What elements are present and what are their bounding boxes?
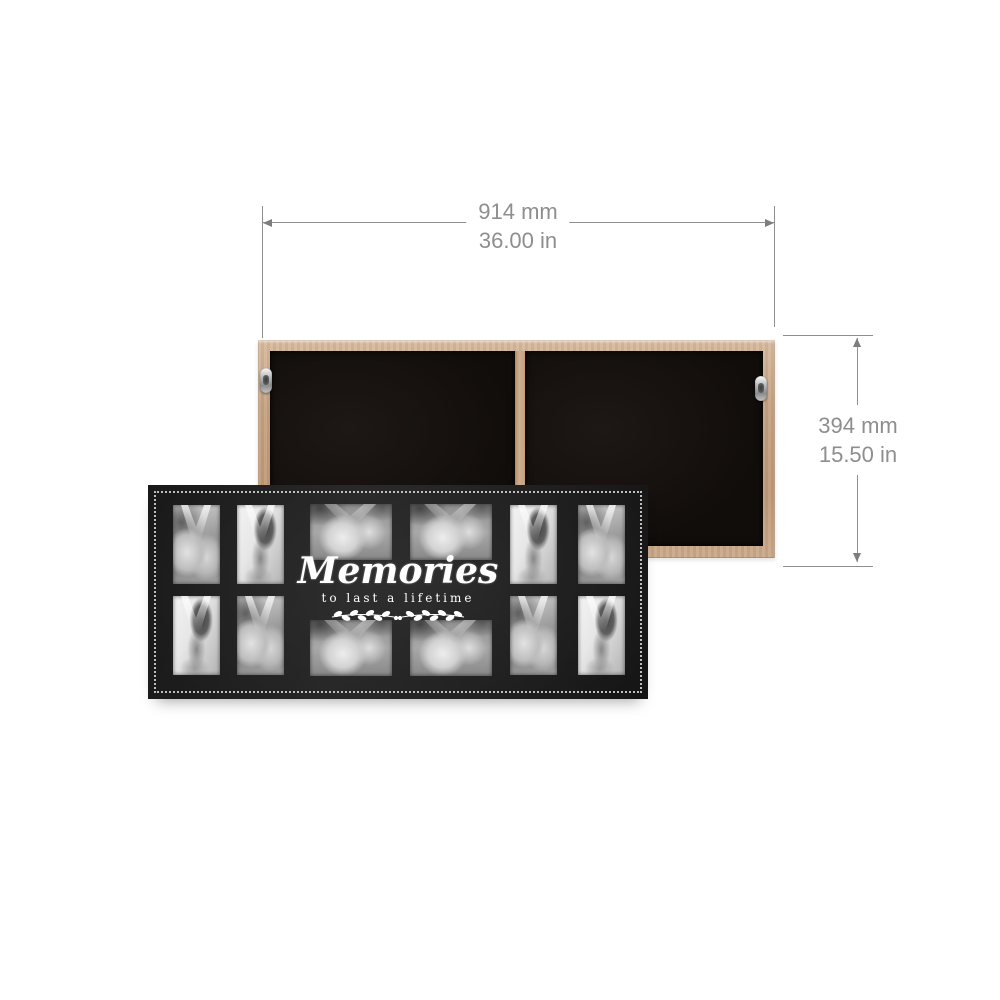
height-extension-line-bottom [783,566,873,567]
arrow-right-icon [765,219,774,227]
caption-subtitle: to last a lifetime [288,591,508,605]
photo-slot [173,505,220,584]
width-imperial: 36.00 in [478,226,557,255]
photo-slot [173,596,220,675]
width-extension-line-right [774,206,775,327]
height-extension-line-top [783,335,873,336]
arrow-left-icon [263,219,272,227]
arrow-down-icon [853,553,861,562]
width-dimension-label: 914 mm 36.00 in [466,195,569,257]
height-dimension-label: 394 mm 15.50 in [810,405,905,475]
product-dimension-diagram: 914 mm 36.00 in 394 mm 15.50 in [0,0,1000,1000]
photo-slot [510,505,557,584]
height-metric: 394 mm [818,411,897,440]
arrow-up-icon [853,338,861,347]
width-metric: 914 mm [478,197,557,226]
photo-slot [578,596,625,675]
laurel-flourish-icon [328,608,468,624]
caption-title: Memories [288,551,508,591]
d-ring-hanger-left [260,368,272,393]
photo-slot [510,596,557,675]
d-ring-hanger-right [755,376,767,401]
photo-slot [237,596,284,675]
caption: Memories to last a lifetime [288,551,508,629]
photo-slot [578,505,625,584]
photo-slot [237,505,284,584]
frame-front-view: Memories to last a lifetime [148,485,648,699]
height-imperial: 15.50 in [818,440,897,469]
